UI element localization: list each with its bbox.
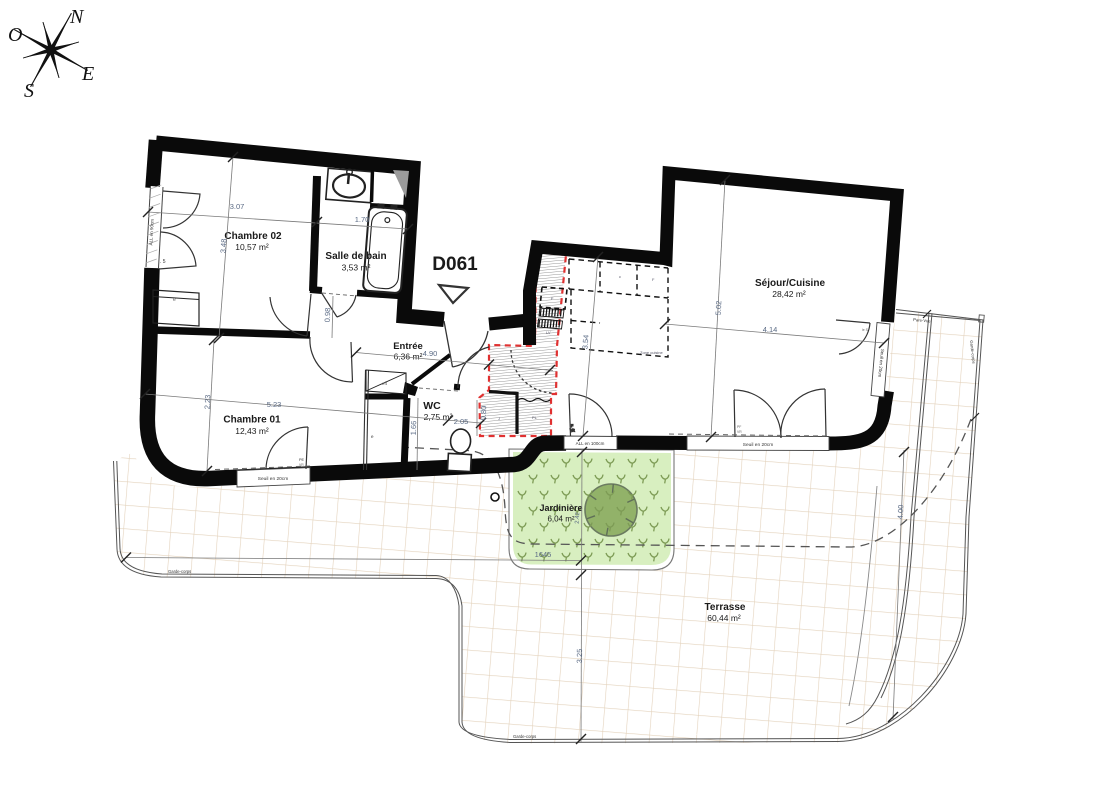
svg-text:3.07: 3.07 xyxy=(230,202,245,211)
svg-text:Chambre 02: Chambre 02 xyxy=(224,231,282,242)
svg-text:. 5: . 5 xyxy=(160,259,166,265)
svg-text:5.02: 5.02 xyxy=(714,300,724,315)
svg-text:le S: le S xyxy=(862,328,869,332)
svg-text:28,42 m²: 28,42 m² xyxy=(772,289,806,299)
svg-text:2.05: 2.05 xyxy=(454,417,469,426)
svg-text:VR: VR xyxy=(570,429,575,433)
svg-text:10,57 m²: 10,57 m² xyxy=(235,242,269,252)
svg-text:3.48: 3.48 xyxy=(219,238,229,253)
svg-text:Entrée: Entrée xyxy=(393,341,423,352)
svg-text:ALL en 100cm: ALL en 100cm xyxy=(576,441,605,446)
svg-text:3.54: 3.54 xyxy=(580,334,590,349)
svg-text:4.00: 4.00 xyxy=(896,504,906,519)
svg-text:PE: PE xyxy=(299,458,305,462)
svg-text:2.42: 2.42 xyxy=(575,511,581,524)
svg-text:O: O xyxy=(8,24,22,46)
svg-text:Seuil en 20cm: Seuil en 20cm xyxy=(743,442,773,448)
svg-text:0.80: 0.80 xyxy=(479,406,489,421)
svg-text:3.25: 3.25 xyxy=(575,649,584,664)
svg-text:3,53 m²: 3,53 m² xyxy=(342,263,371,273)
svg-text:Jardinière: Jardinière xyxy=(539,503,582,513)
svg-text:e: e xyxy=(173,297,176,303)
svg-text:Zone cuisine: Zone cuisine xyxy=(640,350,663,355)
svg-text:Garde-corps: Garde-corps xyxy=(168,569,191,574)
svg-text:1645: 1645 xyxy=(535,550,552,559)
svg-text:PF: PF xyxy=(737,425,741,429)
svg-text:S: S xyxy=(24,80,34,102)
svg-text:4.90: 4.90 xyxy=(423,349,438,358)
svg-text:PL: PL xyxy=(532,415,538,420)
svg-text:N: N xyxy=(69,6,85,28)
svg-text:5.23: 5.23 xyxy=(267,400,282,409)
svg-text:Terrasse: Terrasse xyxy=(705,602,746,613)
svg-text:6,04 m²: 6,04 m² xyxy=(547,515,574,524)
svg-text:VR: VR xyxy=(737,430,742,434)
svg-text:2.23: 2.23 xyxy=(203,394,213,409)
svg-text:4.14: 4.14 xyxy=(763,325,778,334)
svg-text:1.70: 1.70 xyxy=(355,215,370,224)
svg-text:c: c xyxy=(619,274,621,279)
svg-text:J: J xyxy=(498,416,500,421)
svg-text:12,43 m²: 12,43 m² xyxy=(235,426,269,436)
svg-text:F: F xyxy=(571,424,573,428)
svg-text:Salle de bain: Salle de bain xyxy=(325,251,386,262)
svg-text:1.66: 1.66 xyxy=(409,421,419,436)
svg-text:Séjour/Cuisine: Séjour/Cuisine xyxy=(755,278,825,289)
svg-text:LV: LV xyxy=(546,330,551,335)
svg-text:0.98: 0.98 xyxy=(323,308,333,323)
svg-text:Chambre 01: Chambre 01 xyxy=(223,415,281,426)
svg-text:eft: eft xyxy=(382,381,388,386)
svg-text:WC: WC xyxy=(423,400,441,412)
svg-text:D061: D061 xyxy=(432,254,478,275)
svg-text:E: E xyxy=(81,63,94,85)
svg-text:Seuil en 20cm: Seuil en 20cm xyxy=(258,476,288,482)
svg-text:60,44 m²: 60,44 m² xyxy=(707,613,741,623)
svg-text:Garde-corps: Garde-corps xyxy=(513,734,536,739)
